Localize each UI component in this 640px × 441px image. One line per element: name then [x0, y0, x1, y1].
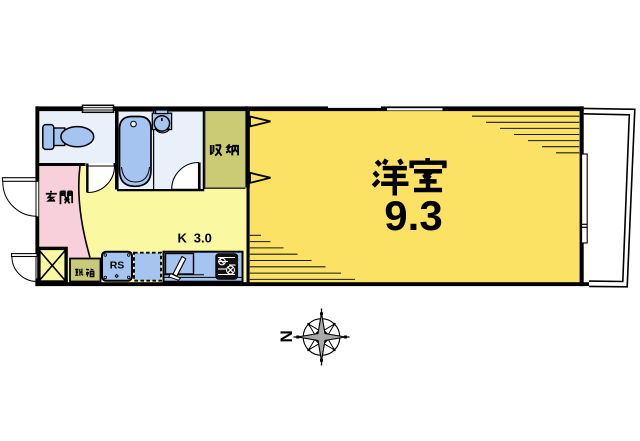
- svg-text:3.0: 3.0: [194, 231, 212, 246]
- svg-text:RS: RS: [110, 260, 125, 272]
- svg-text:N: N: [277, 330, 296, 342]
- svg-text:K: K: [178, 231, 188, 246]
- svg-text:9.3: 9.3: [384, 192, 442, 239]
